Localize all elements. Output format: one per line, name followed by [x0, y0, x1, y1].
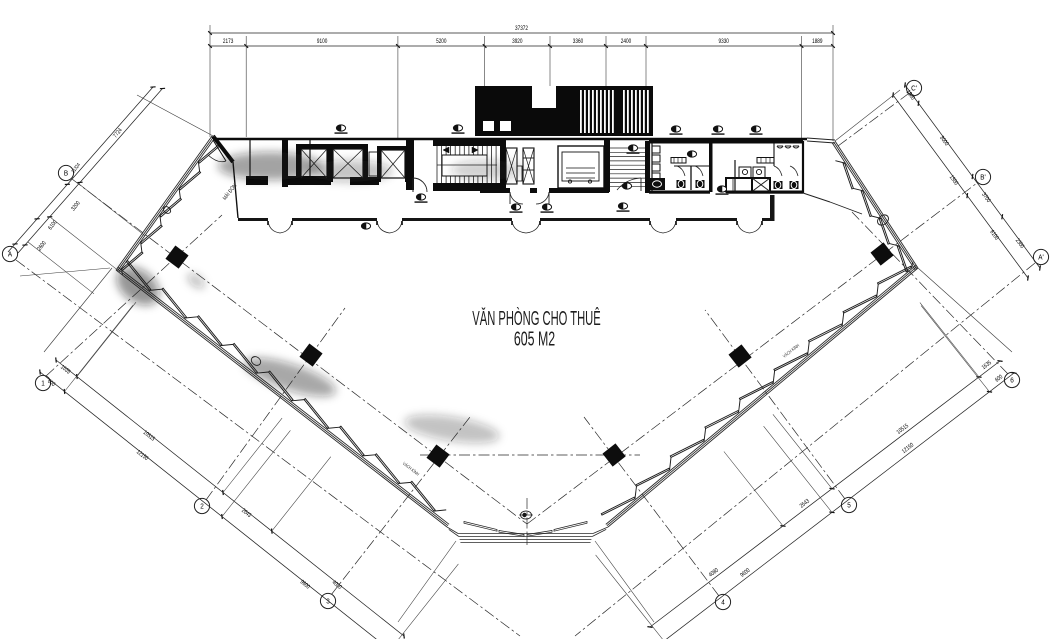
- svg-text:4: 4: [721, 599, 725, 607]
- svg-text:2: 2: [200, 503, 204, 511]
- svg-text:2400: 2400: [621, 39, 631, 46]
- svg-text:3360: 3360: [573, 39, 583, 46]
- svg-text:B: B: [64, 170, 69, 178]
- svg-text:1: 1: [41, 380, 45, 388]
- svg-text:B': B': [980, 174, 985, 182]
- svg-text:5200: 5200: [436, 39, 446, 46]
- svg-text:37372: 37372: [515, 26, 528, 33]
- svg-text:3920: 3920: [512, 39, 522, 46]
- svg-text:2173: 2173: [223, 39, 233, 46]
- svg-text:5: 5: [847, 502, 851, 510]
- svg-text:9330: 9330: [718, 39, 728, 46]
- svg-text:1889: 1889: [812, 39, 822, 46]
- svg-text:VĂN PHÒNG CHO THUÊ: VĂN PHÒNG CHO THUÊ: [472, 306, 601, 329]
- svg-text:A: A: [8, 251, 13, 259]
- svg-text:6: 6: [1010, 377, 1014, 385]
- svg-text:9100: 9100: [317, 39, 327, 46]
- svg-text:A': A': [1038, 254, 1043, 262]
- svg-text:605 M2: 605 M2: [514, 327, 555, 350]
